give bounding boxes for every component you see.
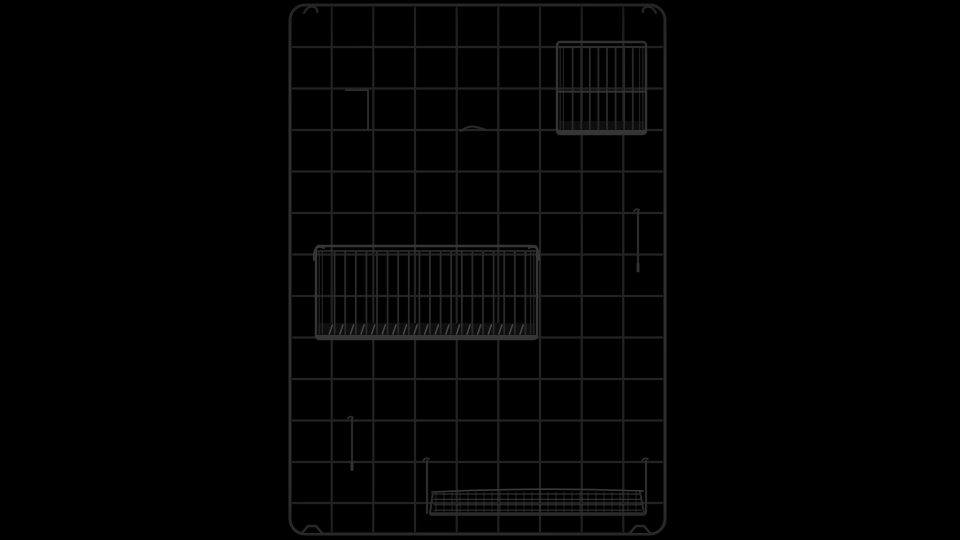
product-render — [0, 0, 960, 540]
vignette-overlay — [0, 0, 960, 540]
product-photo — [0, 0, 960, 540]
screenshot-root: { "meta": { "description": "Black metal … — [0, 0, 960, 540]
